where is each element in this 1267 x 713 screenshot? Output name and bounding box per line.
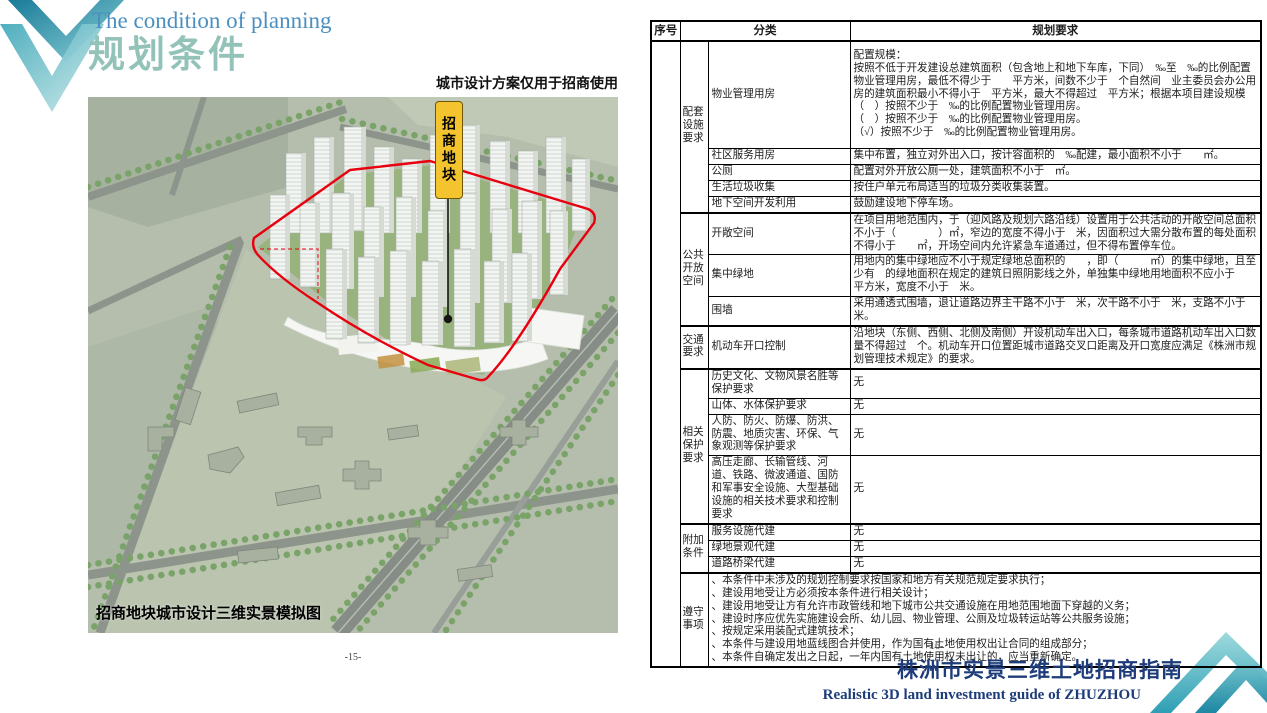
requirement-cell: 在项目用地范围内，于（迎风路及规划六路沿线）设置用于公共活动的开敞空间总面积不小… (850, 213, 1261, 255)
subcategory-cell: 集中绿地 (708, 255, 850, 297)
header-category: 分类 (680, 21, 850, 41)
requirement-cell: 配置对外开放公厕一处，建筑面积不小于 ㎡。 (850, 164, 1261, 180)
footer-title-en: Realistic 3D land investment guide of ZH… (823, 687, 1141, 704)
table-row: 地下空间开发利用 鼓励建设地下停车场。 (651, 196, 1261, 212)
subcategory-cell: 服务设施代建 (708, 524, 850, 540)
requirement-cell: 鼓励建设地下停车场。 (850, 196, 1261, 212)
subcategory-cell: 生活垃圾收集 (708, 180, 850, 196)
subcategory-cell: 地下空间开发利用 (708, 196, 850, 212)
table-row: 配套设施要求 物业管理用房 配置规模： 按照不低于开发建设总建筑面积（包含地上和… (651, 41, 1261, 149)
table-row: 集中绿地 用地内的集中绿地应不小于规定绿地总面积的 ，即（ ㎡）的集中绿地，且至… (651, 255, 1261, 297)
subcategory-cell: 道路桥梁代建 (708, 556, 850, 572)
table-row: 围墙 采用通透式围墙，退让道路边界主干路不小于 米，次干路不小于 米，支路不小于… (651, 297, 1261, 326)
requirement-cell: 配置规模： 按照不低于开发建设总建筑面积（包含地上和地下车库，下同） ‰至 ‰的… (850, 41, 1261, 149)
table-row: 绿地景观代建 无 (651, 540, 1261, 556)
site-marker-label: 招商地块 (435, 101, 463, 199)
subcategory-cell: 高压走廊、长输管线、河道、铁路、微波通道、国防和军事安全设施、大型基础设施的相关… (708, 456, 850, 524)
subcategory-cell: 绿地景观代建 (708, 540, 850, 556)
map-illustration (88, 97, 618, 633)
marker-dot (444, 315, 452, 323)
seq-cell (651, 41, 680, 667)
header-seq: 序号 (651, 21, 680, 41)
requirement-cell: 采用通透式围墙，退让道路边界主干路不小于 米，次干路不小于 米，支路不小于 米。 (850, 297, 1261, 326)
group-protection: 相关保护要求 (680, 369, 708, 524)
subcategory-cell: 开敞空间 (708, 213, 850, 255)
subcategory-cell: 物业管理用房 (708, 41, 850, 149)
table-row: 生活垃圾收集 按住户单元布局适当的垃圾分类收集装置。 (651, 180, 1261, 196)
slide: 规划条件 The condition of planning 城市设计方案仅用于… (0, 0, 1267, 713)
map-usage-note: 城市设计方案仅用于招商使用 (88, 73, 618, 93)
subcategory-cell: 机动车开口控制 (708, 326, 850, 369)
requirement-cell: 无 (850, 524, 1261, 540)
footer-title-zh: 株洲市实景三维土地招商指南 (897, 654, 1183, 684)
requirement-cell: 无 (850, 556, 1261, 572)
subcategory-cell: 历史文化、文物风景名胜等保护要求 (708, 369, 850, 398)
header-requirement: 规划要求 (850, 21, 1261, 41)
group-additional: 附加条件 (680, 524, 708, 573)
table-row: 高压走廊、长输管线、河道、铁路、微波通道、国防和军事安全设施、大型基础设施的相关… (651, 456, 1261, 524)
table-row: 道路桥梁代建 无 (651, 556, 1261, 572)
requirement-cell: 无 (850, 398, 1261, 414)
planning-conditions: 序号 分类 规划要求 配套设施要求 物业管理用房 配置规模： 按照不低于开发建设… (650, 20, 1262, 668)
requirement-cell: 无 (850, 540, 1261, 556)
subcategory-cell: 围墙 (708, 297, 850, 326)
requirement-cell: 集中布置，独立对外出入口，按计容面积的 ‰配建，最小面积不小于 ㎡。 (850, 149, 1261, 165)
table-row: 交通要求 机动车开口控制 沿地块（东侧、西侧、北侧及南侧）开设机动车出入口，每条… (651, 326, 1261, 369)
table-row: 附加条件 服务设施代建 无 (651, 524, 1261, 540)
table-row: 公厕 配置对外开放公厕一处，建筑面积不小于 ㎡。 (651, 164, 1261, 180)
subcategory-cell: 人防、防火、防爆、防洪、防震、地质灾害、环保、气象观测等保护要求 (708, 414, 850, 456)
page-number-right: -16- (650, 641, 1220, 652)
requirement-cell: 无 (850, 414, 1261, 456)
group-facilities: 配套设施要求 (680, 41, 708, 213)
table-row: 公共开放空间 开敞空间 在项目用地范围内，于（迎风路及规划六路沿线）设置用于公共… (651, 213, 1261, 255)
requirement-cell: 沿地块（东侧、西侧、北侧及南侧）开设机动车出入口，每条城市道路机动车出入口数量不… (850, 326, 1261, 369)
group-open-space: 公共开放空间 (680, 213, 708, 326)
requirement-cell: 用地内的集中绿地应不小于规定绿地总面积的 ，即（ ㎡）的集中绿地，且至少有 的绿… (850, 255, 1261, 297)
subcategory-cell: 公厕 (708, 164, 850, 180)
group-compliance: 遵守事项 (680, 573, 708, 667)
page-title-en: The condition of planning (92, 8, 332, 34)
page-number-left: -15- (88, 652, 618, 663)
map-3d-render: 招商地块 招商地块城市设计三维实景模拟图 (88, 97, 618, 633)
table-row: 山体、水体保护要求 无 (651, 398, 1261, 414)
requirement-cell: 无 (850, 456, 1261, 524)
subcategory-cell: 社区服务用房 (708, 149, 850, 165)
requirement-cell: 按住户单元布局适当的垃圾分类收集装置。 (850, 180, 1261, 196)
requirement-cell: 无 (850, 369, 1261, 398)
planning-conditions-table: 序号 分类 规划要求 配套设施要求 物业管理用房 配置规模： 按照不低于开发建设… (650, 20, 1262, 668)
table-row: 相关保护要求 历史文化、文物风景名胜等保护要求 无 (651, 369, 1261, 398)
subcategory-cell: 山体、水体保护要求 (708, 398, 850, 414)
table-header-row: 序号 分类 规划要求 (651, 21, 1261, 41)
map-caption: 招商地块城市设计三维实景模拟图 (96, 602, 321, 623)
table-row: 社区服务用房 集中布置，独立对外出入口，按计容面积的 ‰配建，最小面积不小于 ㎡… (651, 149, 1261, 165)
group-traffic: 交通要求 (680, 326, 708, 369)
table-row: 人防、防火、防爆、防洪、防震、地质灾害、环保、气象观测等保护要求 无 (651, 414, 1261, 456)
